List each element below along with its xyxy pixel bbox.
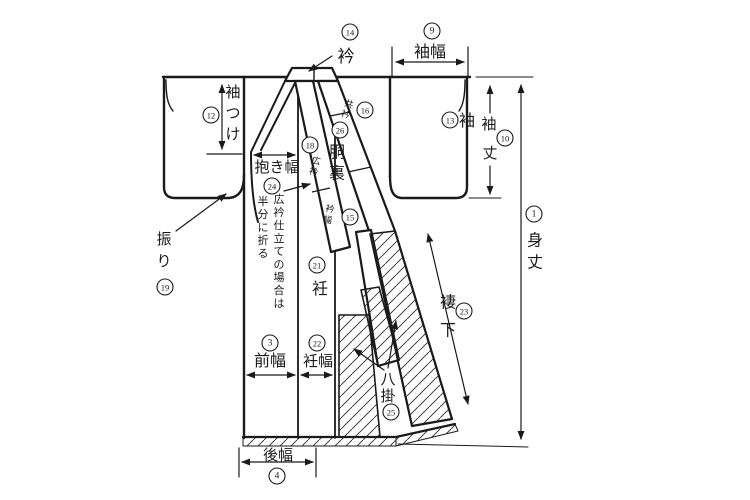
circled-number-24: 24	[264, 178, 280, 194]
label-okumi-text: 衽	[312, 280, 328, 298]
right-sleeve	[390, 77, 467, 198]
label-hiroeri-note-2-text: 分	[258, 208, 269, 221]
label-dakihaba-text: 抱き幅	[254, 159, 299, 176]
label-hiroeri-note-1: 広衿仕立ての場合は	[274, 193, 285, 310]
diagram-canvas: 衿袖幅袖袖つけ抱き幅広衿仕立ての場合は半分に折る振り衽前幅衽幅後幅八掛褄下胴裏身…	[0, 0, 750, 500]
label-hiroeri-note-1-text: 衿	[274, 205, 285, 219]
arrow-furi-pointer	[176, 194, 226, 231]
left-sleeve-fold	[166, 80, 173, 111]
label-ushirohaba: 後幅	[263, 447, 293, 464]
collar-left-inner-edge	[261, 81, 296, 150]
label-hiroeri-note-2: 半分に折る	[258, 194, 269, 260]
circle-number-3: 3	[268, 339, 273, 349]
label-hiroeri-note-1-text: の	[274, 259, 285, 271]
circled-number-10: 10	[497, 130, 513, 146]
label-dakihaba: 抱き幅	[254, 159, 299, 176]
label-furi-text: り	[156, 254, 171, 270]
label-sodetake-sode: 袖	[481, 116, 496, 133]
label-hiroeri-note-2-text: 半	[258, 194, 269, 208]
circle-number-24: 24	[268, 182, 277, 192]
label-hiroeri-note-1-text: 広	[274, 193, 285, 206]
label-sodehaba: 袖幅	[414, 43, 446, 61]
circled-number-1: 1	[526, 206, 542, 222]
circled-number-22: 22	[309, 335, 325, 351]
label-hakkake-text: 八	[380, 372, 395, 388]
circle-number-13: 13	[446, 116, 455, 126]
circle-number-4: 4	[275, 472, 280, 482]
circled-number-13: 13	[442, 112, 458, 128]
circled-number-19: 19	[157, 279, 173, 295]
label-hiroeri-note-2-text: る	[258, 248, 269, 260]
label-mitake-text: 身	[527, 232, 543, 250]
label-mitake: 身丈	[527, 232, 543, 272]
circled-number-25: 25	[383, 404, 399, 420]
label-sodetsuke-text: け	[225, 127, 240, 143]
circle-number-18: 18	[306, 141, 315, 151]
circle-number-15: 15	[346, 213, 355, 223]
label-hiroeri-note-1-text: 合	[274, 283, 285, 297]
circle-number-23: 23	[460, 307, 469, 317]
label-ushirohaba-text: 後幅	[263, 447, 293, 464]
circled-number-15: 15	[342, 209, 358, 225]
label-okumi: 衽	[312, 280, 328, 298]
circled-number-3: 3	[262, 335, 278, 351]
circle-number-9: 9	[430, 27, 435, 37]
label-sodehaba-text: 袖幅	[414, 43, 446, 61]
circle-number-14: 14	[346, 28, 355, 38]
label-furi: 振り	[156, 231, 171, 270]
label-maehaba-text: 前幅	[254, 352, 286, 370]
circled-number-23: 23	[456, 303, 472, 319]
arrow-hiroeri-note-pointer	[284, 184, 310, 191]
circled-number-14: 14	[342, 24, 358, 40]
circle-number-12: 12	[207, 111, 216, 121]
label-sode: 袖	[459, 112, 475, 130]
label-sodetake-take: 丈	[482, 145, 497, 162]
circle-number-1: 1	[532, 210, 537, 220]
circled-number-4: 4	[269, 468, 285, 484]
circle-number-10: 10	[501, 134, 510, 144]
label-hiroeri-note-1-text: 仕	[274, 219, 285, 232]
label-maehaba: 前幅	[254, 352, 286, 370]
label-furi-text: 振	[156, 231, 171, 248]
label-hiroeri-note-1-text: は	[274, 297, 285, 310]
label-hakkake: 八掛	[380, 372, 395, 405]
label-hiroeri-note-2-text: 折	[258, 233, 269, 247]
circled-number-9: 9	[424, 23, 440, 39]
hem-band	[243, 437, 396, 446]
label-mitake-text: 丈	[527, 254, 543, 272]
label-hiroeri-note-2-text: に	[258, 222, 269, 234]
right-sleeve-fold	[459, 80, 465, 111]
label-eri: 衿	[338, 47, 355, 66]
label-sodetake-sode-text: 袖	[481, 116, 496, 133]
label-eri-text: 衿	[338, 47, 355, 66]
label-sodetsuke-text: つ	[225, 106, 240, 122]
kimono-pattern-diagram: 衿袖幅袖袖つけ抱き幅広衿仕立ての場合は半分に折る振り衽前幅衽幅後幅八掛褄下胴裏身…	[0, 0, 750, 500]
label-hakkake-text: 掛	[380, 388, 395, 405]
label-hiroeri-note-1-text: 立	[274, 231, 285, 245]
circled-number-16: 16	[357, 102, 373, 118]
label-sodetsuke: 袖つけ	[225, 84, 240, 143]
label-sode-text: 袖	[459, 112, 475, 130]
label-hiroeri-note-1-text: て	[274, 246, 285, 258]
label-okumihaba-text: 衽幅	[303, 353, 333, 370]
circle-number-26: 26	[336, 126, 345, 136]
circle-number-21: 21	[313, 261, 322, 271]
label-douura-text: 胴	[329, 144, 345, 162]
circle-number-19: 19	[161, 283, 170, 293]
circle-number-25: 25	[387, 408, 396, 418]
label-hiroeri-note-1-text: 場	[274, 271, 285, 284]
label-douura-text: 裏	[329, 164, 345, 183]
label-tsumashita-text: 褄	[440, 294, 456, 312]
circle-number-16: 16	[361, 106, 370, 116]
circled-number-18: 18	[302, 137, 318, 153]
label-sodetake-take-text: 丈	[482, 145, 497, 162]
circled-number-21: 21	[309, 257, 325, 273]
hem-reference-line	[398, 444, 528, 447]
label-sodetsuke-text: 袖	[225, 84, 240, 101]
label-tsumashita-text: 下	[440, 323, 456, 340]
circled-number-12: 12	[203, 107, 219, 123]
circled-number-26: 26	[332, 122, 348, 138]
label-okumihaba: 衽幅	[303, 353, 333, 370]
circle-number-22: 22	[313, 339, 322, 349]
